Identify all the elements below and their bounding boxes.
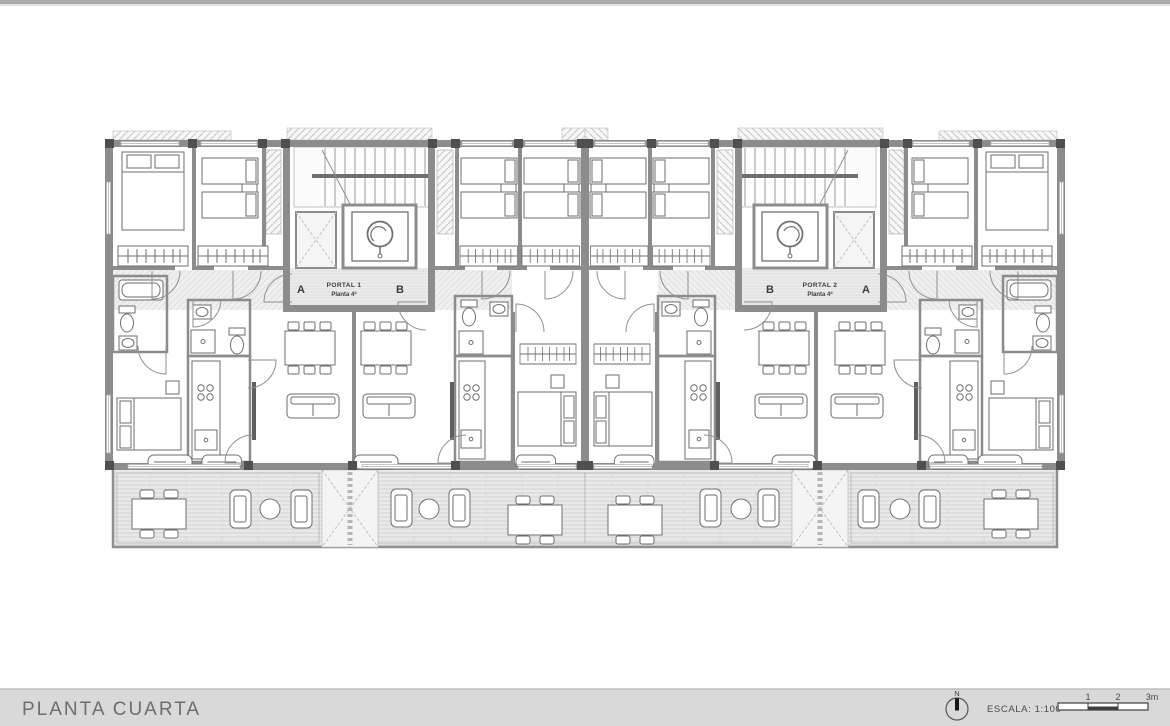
sheet-top-strip-shadow — [0, 4, 1170, 6]
building-half-right — [584, 128, 1065, 547]
toilet — [119, 306, 135, 332]
nightstand — [166, 381, 179, 394]
portal-2-floor: Planta 4ª — [807, 291, 833, 298]
toilet — [229, 328, 245, 354]
floor-title: PLANTA CUARTA — [22, 699, 201, 720]
wardrobe — [118, 246, 188, 266]
tv-sideboard — [252, 382, 256, 440]
terrace-round-table — [419, 499, 439, 519]
twin-beds — [202, 158, 258, 218]
terrace-band — [113, 470, 585, 547]
bed — [122, 152, 184, 230]
terrace-armchair — [391, 489, 412, 527]
toilet — [461, 300, 477, 326]
bathtub — [119, 280, 163, 300]
portal-2-name: PORTAL 2 — [803, 282, 838, 289]
master-bed — [117, 398, 181, 450]
portal-1-floor: Planta 4ª — [331, 291, 357, 298]
facade-trellis — [113, 131, 231, 140]
sofa — [287, 394, 339, 418]
elevator — [343, 205, 416, 268]
scale-tick-1: 1 — [1085, 692, 1090, 702]
portal-1-name: PORTAL 1 — [327, 282, 362, 289]
scale-tick-3: 3m — [1146, 692, 1159, 702]
master-bed — [518, 392, 576, 446]
architectural-drawing-page: A PORTAL 1 Planta 4ª B B PORTAL 2 Planta… — [0, 0, 1170, 726]
center-canopy — [562, 128, 585, 140]
wardrobe — [520, 344, 576, 364]
wardrobe — [522, 246, 579, 266]
washbasin — [119, 336, 137, 350]
shower — [191, 330, 215, 353]
duct-shaft — [437, 150, 453, 234]
terrace-armchair — [291, 490, 312, 528]
portal-2-apartment-a-label: A — [862, 284, 870, 296]
stair-landing-rail — [312, 174, 428, 178]
wardrobe — [198, 246, 268, 266]
wardrobe — [460, 246, 517, 266]
dining-table — [285, 322, 335, 374]
portal-1-apartment-a-label: A — [297, 284, 305, 296]
terrace-armchair — [449, 489, 470, 527]
washbasin — [193, 305, 211, 319]
floor-plan-canvas: A PORTAL 1 Planta 4ª B B PORTAL 2 Planta… — [0, 0, 1170, 726]
sheet-top-strip — [0, 0, 1170, 4]
building-half-left — [105, 128, 586, 547]
washbasin — [490, 302, 508, 316]
kitchen-sink — [461, 430, 481, 448]
scale-tick-2: 2 — [1115, 692, 1120, 702]
north-label: N — [954, 689, 959, 698]
portal-2-apartment-b-label: B — [766, 284, 774, 296]
portal-1-apartment-b-label: B — [396, 284, 404, 296]
footer-bar: PLANTA CUARTA N ESCALA: 1:100 1 2 3m — [0, 689, 1170, 726]
tv-sideboard — [450, 382, 454, 440]
sofa — [363, 394, 415, 418]
terrace-round-table — [260, 499, 280, 519]
scale-label: ESCALA: 1:100 — [987, 704, 1061, 715]
duct-shaft — [266, 150, 281, 234]
core-canopy — [287, 128, 432, 140]
twin-beds — [524, 158, 580, 218]
north-needle-icon — [955, 699, 959, 711]
twin-beds — [461, 158, 517, 218]
shower — [459, 331, 483, 354]
nightstand — [551, 375, 564, 388]
kitchen-sink — [195, 430, 217, 450]
dining-table — [361, 322, 411, 374]
stair-core — [294, 147, 428, 268]
terrace-armchair — [230, 490, 251, 528]
